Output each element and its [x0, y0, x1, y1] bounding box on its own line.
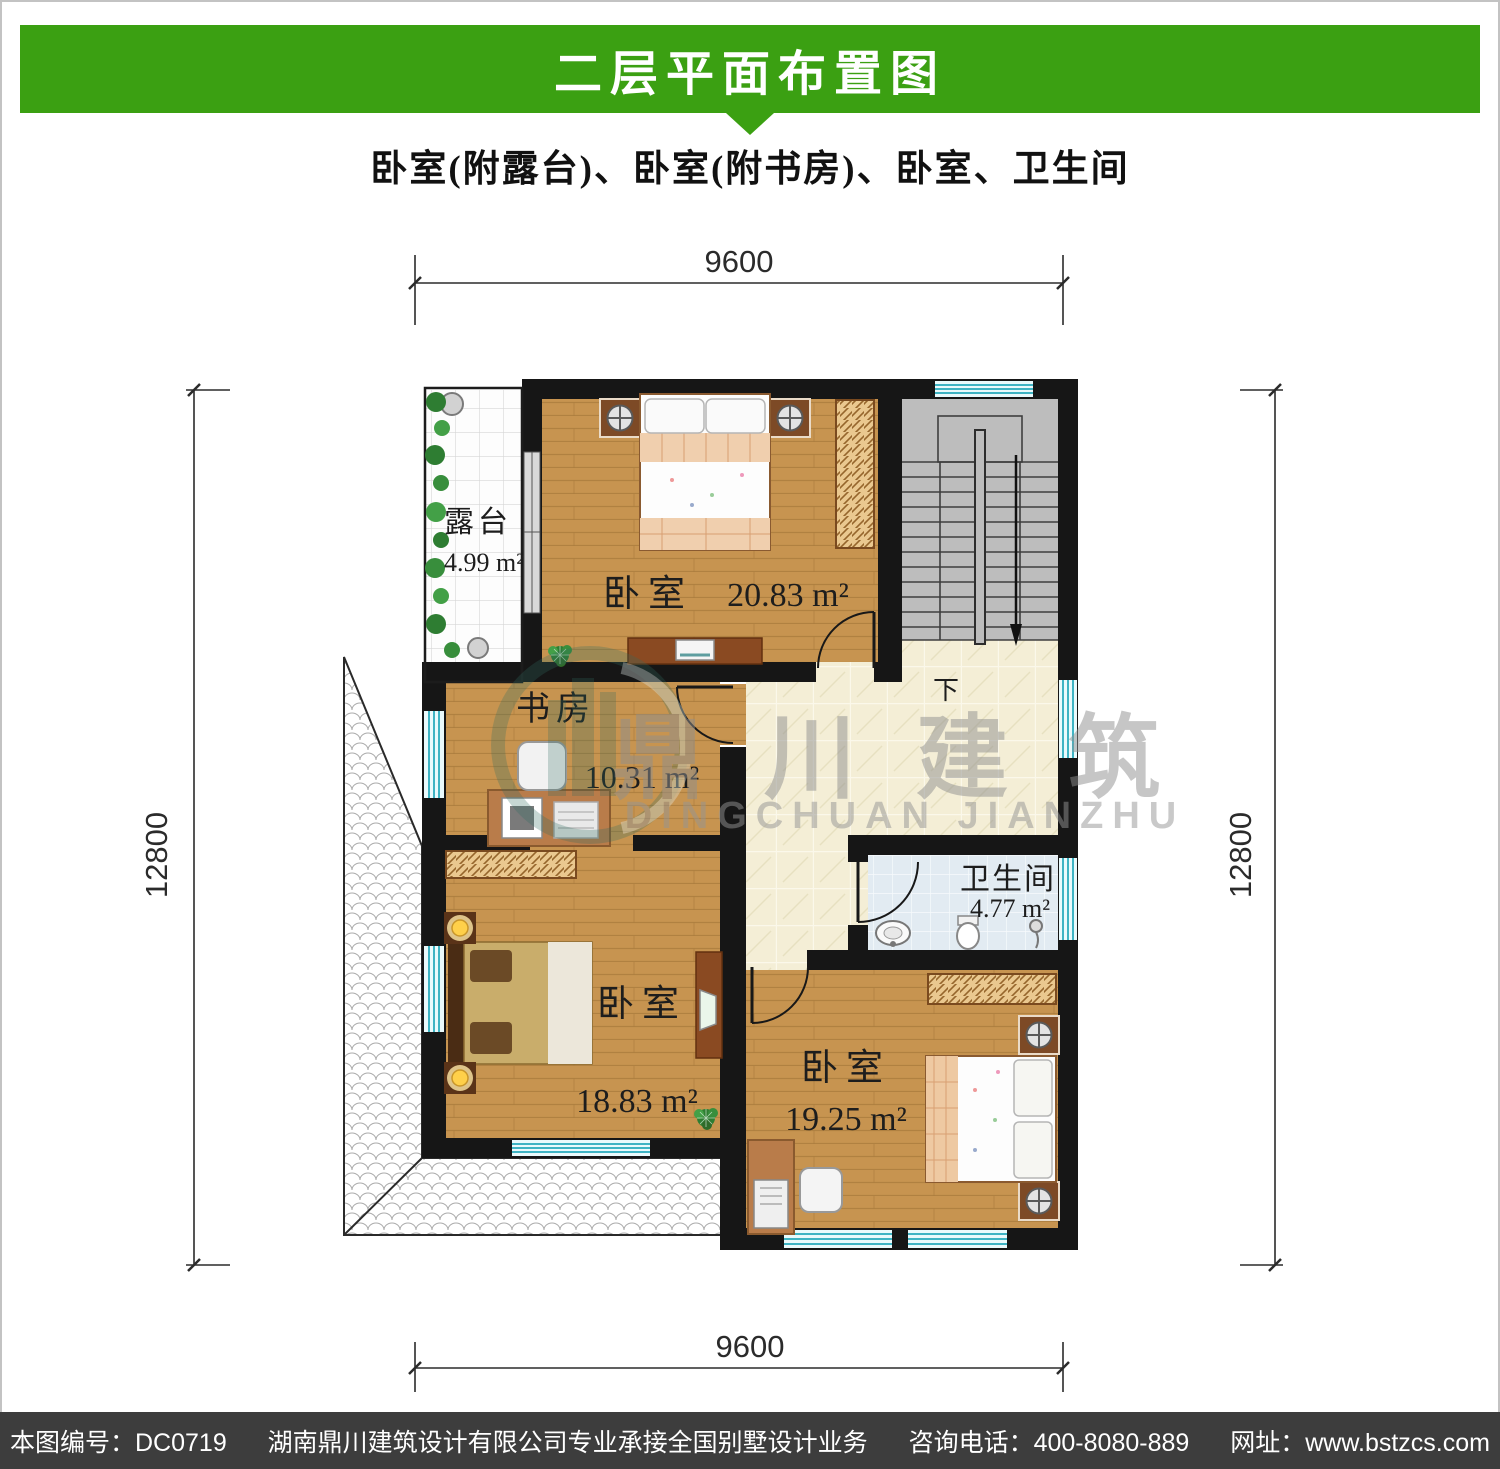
header-pointer-triangle: [726, 113, 774, 135]
wardrobe: [836, 400, 874, 548]
wall-bathroom-north: [848, 835, 1078, 855]
stairs-down-label: 下: [933, 676, 959, 705]
bedroom-left-label: 卧室: [597, 983, 687, 1025]
window-bedroom-left-west: [424, 946, 444, 1032]
dresser-tv: [696, 952, 722, 1058]
page-title: 二层平面布置图: [554, 34, 946, 104]
footer-bar: 本图编号：DC0719 湖南鼎川建筑设计有限公司专业承接全国别墅设计业务 咨询电…: [0, 1412, 1500, 1469]
subtitle: 卧室(附露台)、卧室(附书房)、卧室、卫生间: [0, 138, 1500, 192]
bedroom-right-label: 卧室: [801, 1047, 891, 1089]
bed: [448, 940, 592, 1066]
nightstand: [1019, 1016, 1059, 1054]
window-stairs-north: [935, 381, 1033, 397]
window-bathroom-east: [1059, 858, 1077, 940]
bedroom-left-area: 18.83 m²: [576, 1083, 698, 1120]
bathroom-area: 4.77 m²: [970, 894, 1050, 923]
header-bar: 二层平面布置图: [20, 25, 1480, 113]
nightstand: [770, 399, 810, 437]
footer-plan-number: 本图编号：DC0719: [10, 1423, 227, 1459]
wall-bathroom-south: [807, 950, 1078, 970]
bedside-lamp: [444, 912, 476, 944]
stair-center-rail: [975, 430, 985, 644]
window-bedroom-right-south-b: [908, 1230, 1007, 1248]
dim-right-value: 12800: [1223, 812, 1258, 898]
terrace-area: 4.99 m²: [444, 548, 524, 577]
tv-cabinet: [628, 638, 762, 664]
wardrobe: [446, 851, 576, 878]
terrace-sliding-door: [524, 452, 540, 613]
footer-phone: 咨询电话：400-8080-889: [909, 1423, 1190, 1459]
bedroom-top-area: 20.83 m²: [727, 577, 849, 614]
footer-website: 网址：www.bstzcs.com: [1230, 1423, 1490, 1459]
wall-study-south-b: [633, 835, 746, 851]
window-study-west: [424, 711, 444, 798]
wardrobe: [928, 974, 1056, 1004]
dim-top-value: 9600: [705, 244, 774, 279]
chair: [800, 1168, 842, 1212]
double-bed: [640, 394, 770, 550]
bedside-lamp: [444, 1062, 476, 1094]
floor-plan: 露台 4.99 m² 卧室 20.83 m² 书房 10.31 m² 卫生间 4…: [0, 0, 1500, 1469]
nightstand: [1019, 1182, 1059, 1220]
planter-pot: [468, 638, 488, 658]
dim-bottom-value: 9600: [716, 1329, 785, 1364]
page: 二层平面布置图 卧室(附露台)、卧室(附书房)、卧室、卫生间: [0, 0, 1500, 1469]
footer-company: 湖南鼎川建筑设计有限公司专业承接全国别墅设计业务: [268, 1423, 868, 1459]
wall-stairs-west: [878, 379, 902, 662]
window-bedroom-right-south-a: [784, 1230, 892, 1248]
dim-left-value: 12800: [139, 812, 174, 898]
bedroom-right-area: 19.25 m²: [785, 1101, 907, 1138]
dim-left: [186, 384, 230, 1271]
window-bedroom-left-south: [512, 1140, 650, 1156]
nightstand: [600, 399, 640, 437]
hall-floor-under-stairs: [902, 640, 1058, 682]
double-bed: [926, 1056, 1056, 1182]
bathroom-label: 卫生间: [960, 863, 1056, 896]
bedroom-top-label: 卧室: [603, 573, 693, 615]
watermark-en: DINGCHUAN JIANZHU: [625, 795, 1185, 837]
terrace-label: 露台: [444, 506, 512, 539]
